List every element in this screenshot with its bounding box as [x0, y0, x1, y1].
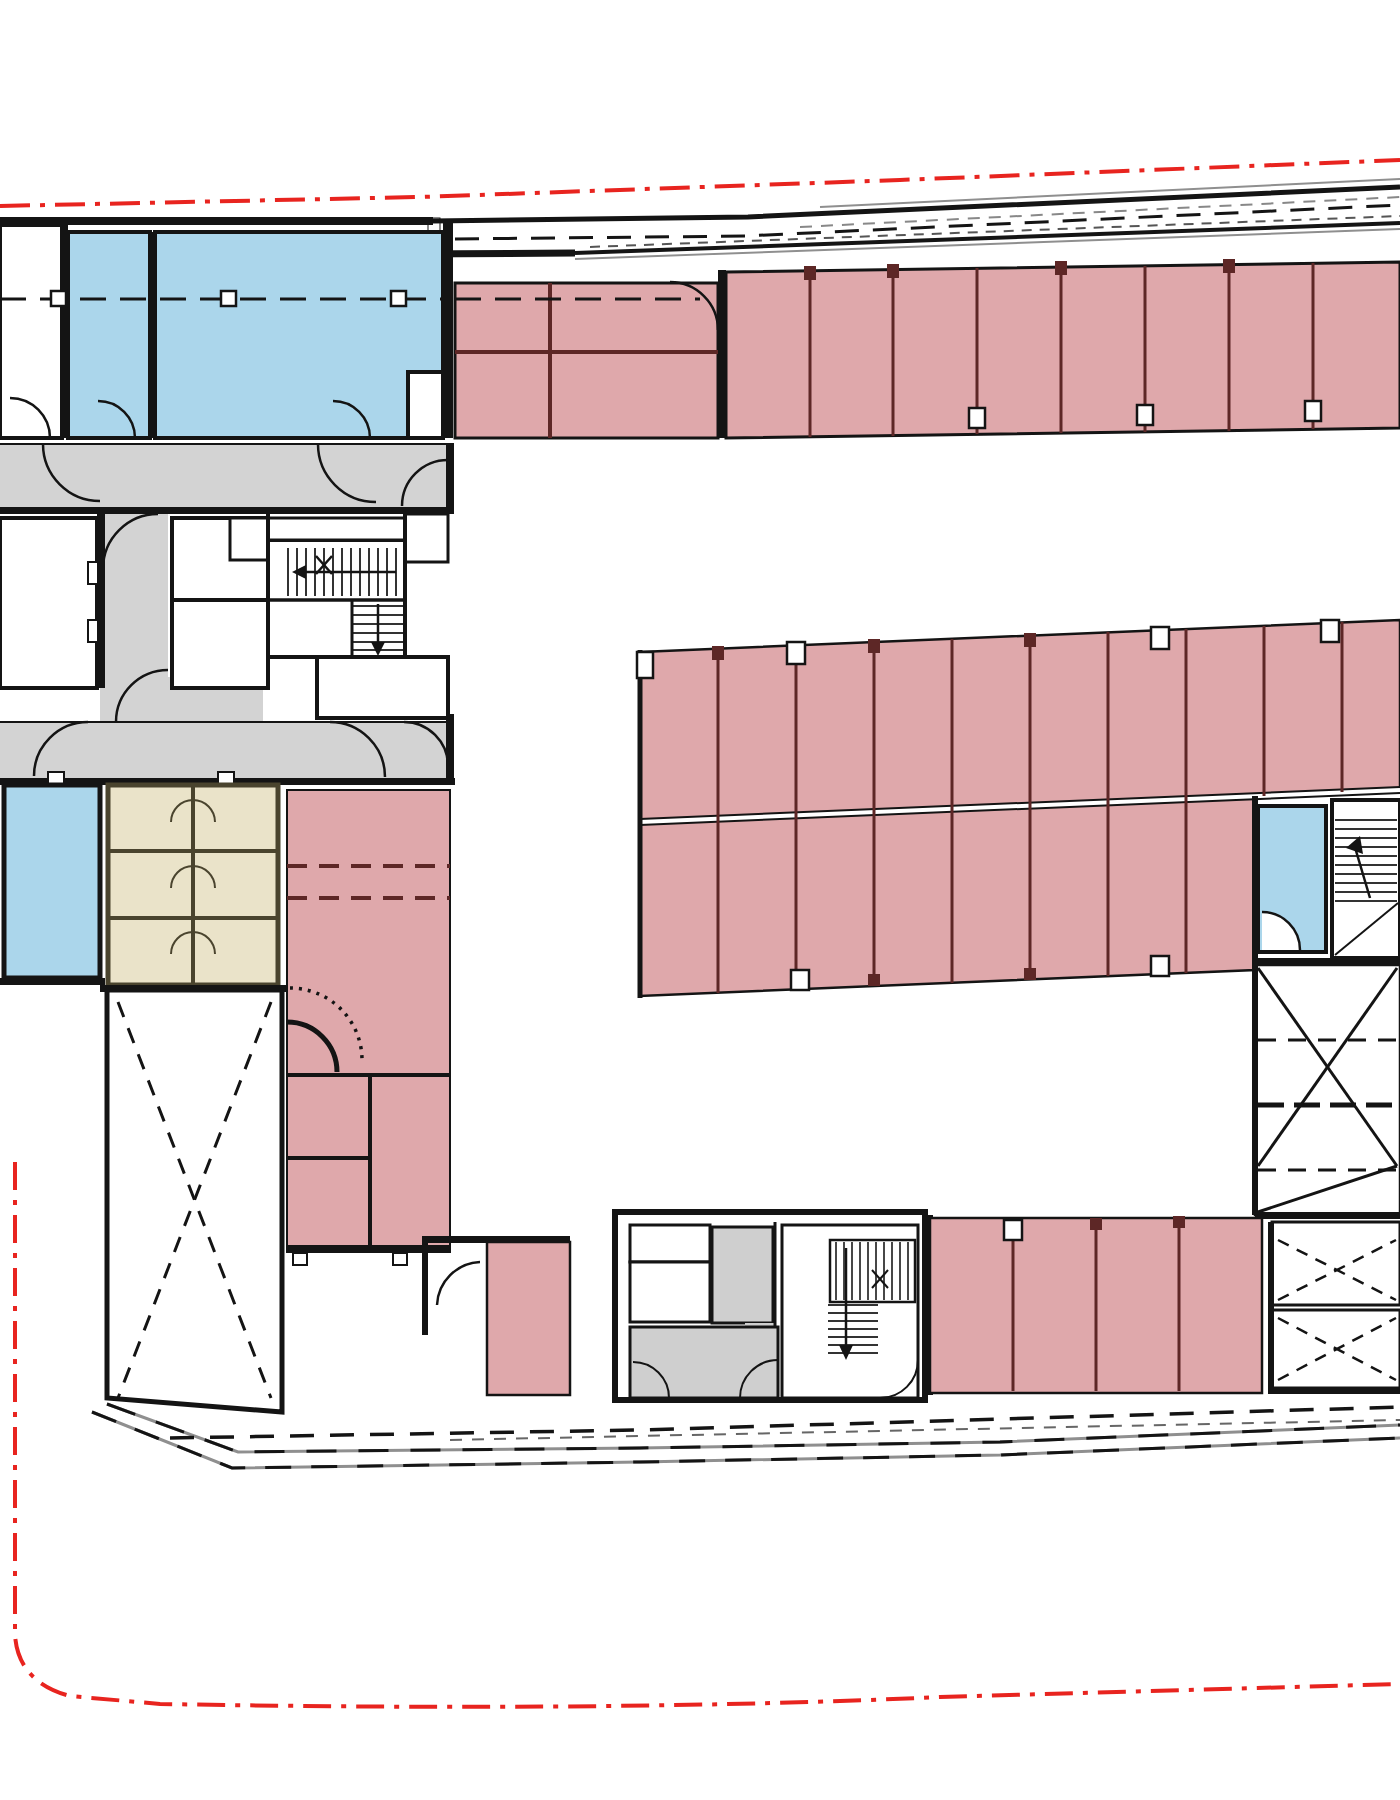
parking-row-north: [455, 259, 1400, 438]
room-nw-blue-large: [155, 232, 443, 438]
west-void: [100, 985, 287, 1412]
wall-east-of-blue: [443, 221, 453, 438]
parking-block-2x2: [455, 283, 718, 438]
south-core-block: [615, 1212, 925, 1400]
corridor-lower-right-wall: [446, 714, 454, 785]
stairwell-east: [1332, 800, 1400, 958]
room-south-gray: [630, 1327, 778, 1398]
ramp-bottom-wall: [575, 223, 1400, 253]
road-outer-edge-dash: [92, 1412, 1400, 1468]
wall-segment: [1252, 965, 1258, 1215]
room-core-c: [172, 600, 268, 688]
south-road: [92, 1404, 1400, 1468]
wall-segment: [100, 985, 287, 992]
west-storage: [0, 785, 105, 985]
corridor-upper-right-wall: [446, 443, 454, 514]
wall-divider-1: [62, 225, 68, 438]
wall-segment: [97, 514, 105, 688]
wc-area: [108, 785, 278, 985]
wall-tick: [393, 1253, 407, 1265]
core-rooms: [0, 514, 448, 718]
wall-tick: [293, 1253, 307, 1265]
wall-divider-2: [150, 232, 155, 438]
ramp-room: [1255, 965, 1400, 1215]
column-marker: [637, 652, 653, 678]
void-room: [107, 990, 282, 1412]
room-core-west: [0, 518, 97, 688]
column-tick: [1090, 1218, 1102, 1230]
wall-segment: [1255, 1212, 1400, 1219]
ramp-lane-dashes-2: [590, 216, 1400, 247]
southeast-ramp-lanes: [1268, 1222, 1400, 1394]
column-marker: [51, 291, 66, 306]
wall-segment: [422, 1236, 428, 1335]
stair-treads-south-lower: [828, 1305, 878, 1353]
parking-strip-west: [287, 790, 450, 1265]
parking-stall-single: [487, 1242, 570, 1395]
column-marker: [221, 291, 236, 306]
room-west-blue: [4, 785, 100, 978]
column-tick: [1173, 1216, 1185, 1228]
door-arc: [437, 1262, 480, 1305]
ramp-bottom-rail: [575, 229, 1400, 259]
floor-plan-drawing: [0, 0, 1400, 1800]
room-nw-niche: [408, 372, 443, 438]
wall-segment: [1268, 1388, 1400, 1394]
elevator-shaft: [712, 1227, 773, 1323]
room-nw-white: [0, 225, 62, 438]
room-south-a: [630, 1225, 710, 1262]
room-core-b2: [230, 518, 268, 560]
east-ramp: [1252, 965, 1400, 1219]
corridor-upper: [0, 445, 448, 507]
northwest-rooms: [0, 221, 453, 438]
room-core-strip: [268, 518, 405, 540]
wall-segment: [1268, 1222, 1274, 1390]
parking-row-long: [726, 262, 1400, 438]
room-core-d: [405, 514, 448, 562]
room-core-e: [317, 657, 448, 718]
room-south-b: [630, 1262, 710, 1322]
floor-plan-canvas: [0, 0, 1400, 1800]
east-stair-block: [1252, 796, 1400, 966]
column-marker: [391, 291, 406, 306]
column-marker: [1004, 1220, 1022, 1240]
corridor-upper-bottom-wall: [0, 507, 448, 514]
room-nw-blue-small: [68, 232, 150, 438]
wall-segment: [0, 978, 105, 985]
